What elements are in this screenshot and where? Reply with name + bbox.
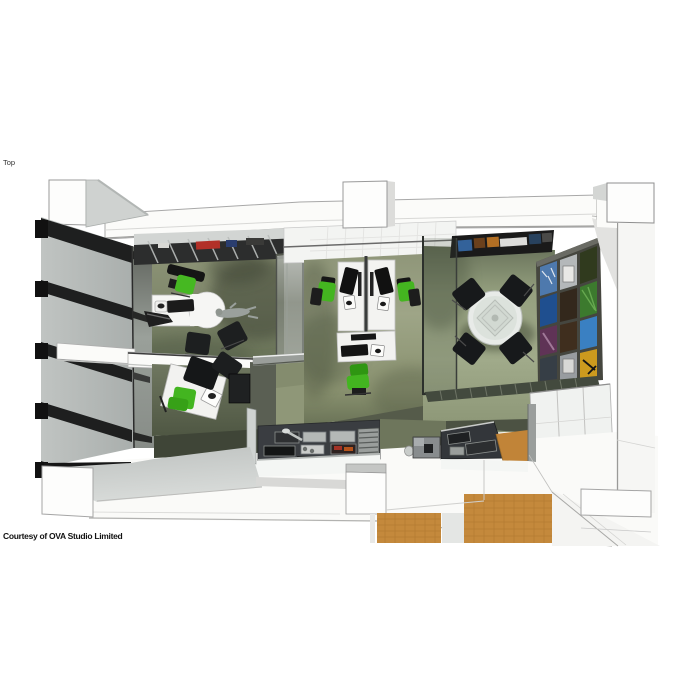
svg-text:Courtesy of OVA Studio Limited: Courtesy of OVA Studio Limited: [3, 531, 123, 541]
svg-text:Top: Top: [3, 158, 15, 167]
